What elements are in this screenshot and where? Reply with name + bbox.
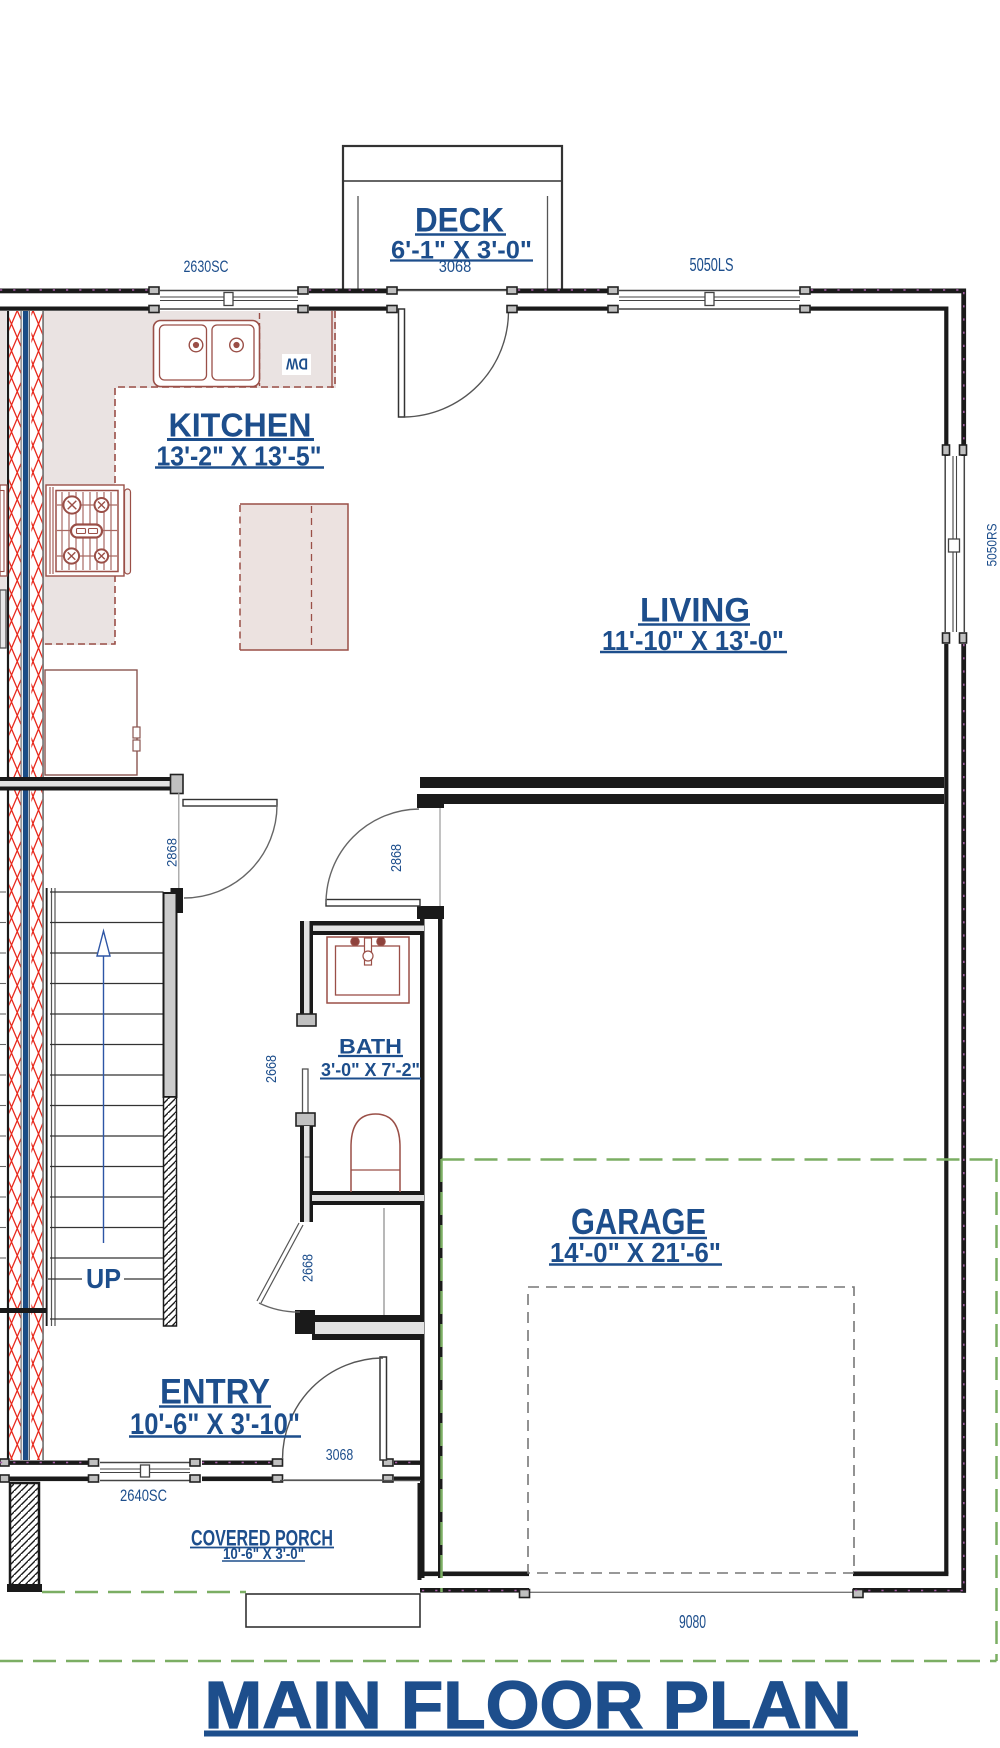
- svg-text:2630SC: 2630SC: [184, 257, 229, 276]
- svg-text:3'-0" X 7'-2": 3'-0" X 7'-2": [321, 1060, 420, 1080]
- svg-text:2668: 2668: [300, 1254, 317, 1282]
- svg-text:GARAGE: GARAGE: [571, 1201, 706, 1242]
- svg-text:5050RS: 5050RS: [984, 524, 1000, 567]
- svg-text:2668: 2668: [263, 1055, 280, 1083]
- svg-text:2640SC: 2640SC: [120, 1486, 167, 1505]
- svg-text:UP: UP: [86, 1263, 121, 1294]
- svg-text:DW: DW: [286, 355, 308, 372]
- svg-text:3068: 3068: [326, 1447, 354, 1464]
- svg-text:9080: 9080: [679, 1612, 706, 1632]
- svg-text:2868: 2868: [388, 844, 405, 872]
- svg-text:5050LS: 5050LS: [690, 255, 734, 275]
- svg-text:2868: 2868: [164, 838, 180, 867]
- svg-text:KITCHEN: KITCHEN: [169, 407, 312, 444]
- svg-text:3068: 3068: [439, 257, 472, 276]
